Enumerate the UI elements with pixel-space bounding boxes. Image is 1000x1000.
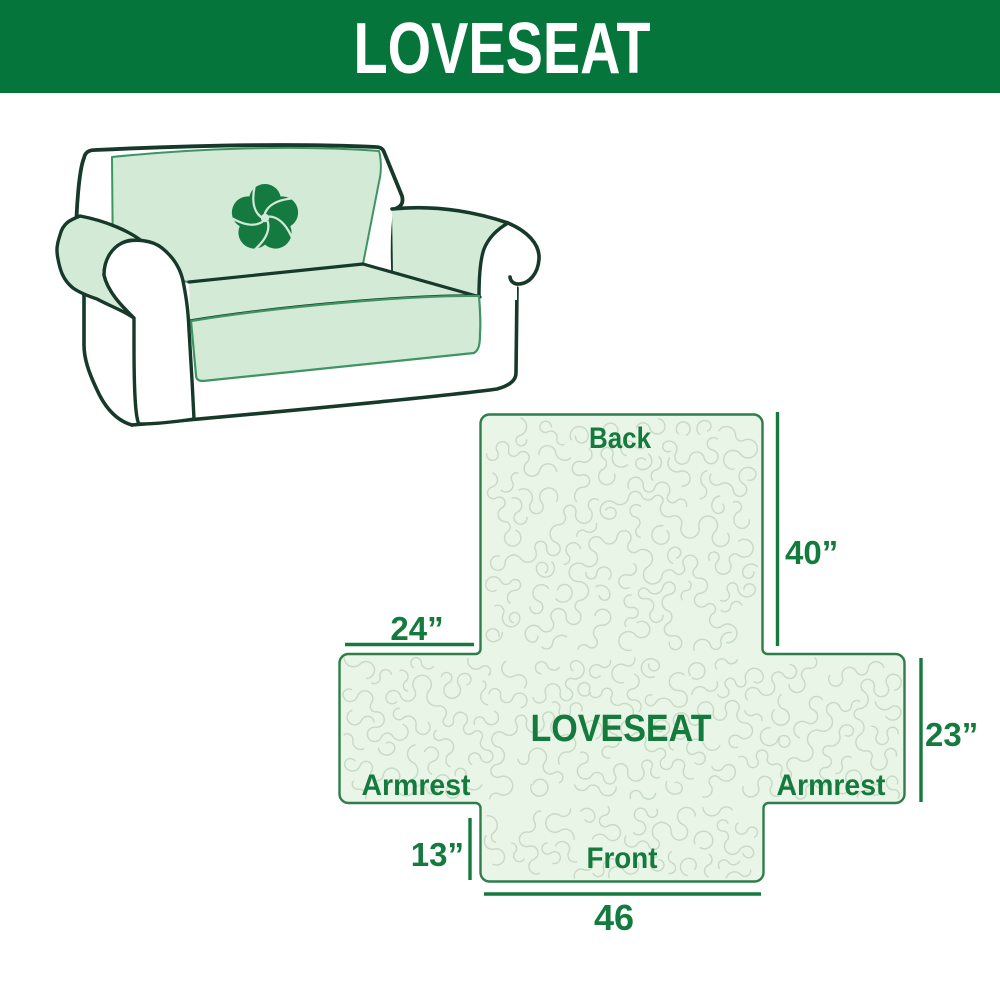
svg-text:Armrest: Armrest bbox=[777, 769, 886, 802]
svg-text:LOVESEAT: LOVESEAT bbox=[531, 708, 712, 750]
svg-text:LOVESEAT: LOVESEAT bbox=[354, 9, 651, 89]
svg-text:23”: 23” bbox=[925, 716, 978, 753]
svg-text:40”: 40” bbox=[785, 534, 838, 571]
svg-text:46: 46 bbox=[594, 897, 634, 938]
svg-text:13”: 13” bbox=[411, 836, 464, 873]
svg-text:Back: Back bbox=[589, 422, 651, 455]
svg-text:24”: 24” bbox=[390, 610, 443, 647]
svg-text:Front: Front bbox=[587, 842, 658, 875]
svg-text:Armrest: Armrest bbox=[362, 769, 471, 802]
